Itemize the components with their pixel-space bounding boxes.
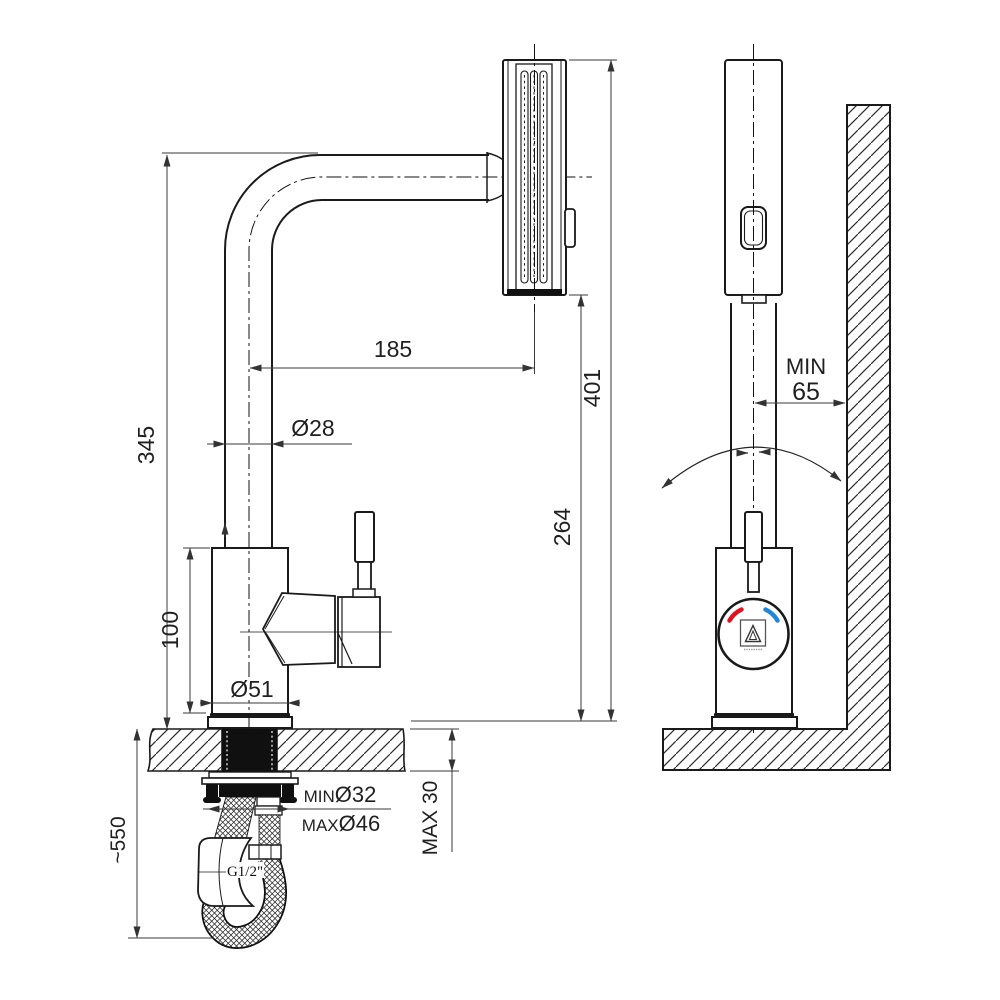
base-plate — [208, 717, 292, 728]
dim-hole-min-label: MINØ32 — [304, 782, 377, 807]
handle-collar — [353, 589, 375, 597]
countertop-right-section — [277, 729, 405, 771]
handle-lever-front — [745, 512, 762, 562]
handle-stem-front — [748, 562, 759, 592]
spout-inner-line — [272, 200, 489, 548]
dim-100-label: 100 — [157, 611, 183, 649]
supply-hose-left — [214, 797, 256, 840]
spray-button-side — [565, 209, 575, 247]
dim-min65-value: 65 — [792, 378, 820, 406]
dim-max30-label: MAX 30 — [419, 781, 442, 856]
mounting-washer — [209, 772, 291, 778]
dim-264-label: 264 — [549, 508, 575, 547]
dim-o28-label: Ø28 — [291, 415, 334, 441]
nozzle-strip-1 — [521, 71, 528, 283]
dim-401-label: 401 — [579, 369, 605, 407]
dim-tube-diameter: Ø28 — [207, 415, 352, 444]
dim-o51-label: Ø51 — [230, 676, 273, 702]
mounting-shank — [222, 729, 277, 773]
brand-logo — [741, 620, 766, 650]
thread-size-label: G1/2" — [227, 864, 263, 880]
dim-hole-max-label: MAXØ46 — [302, 811, 380, 836]
side-view: G1/2" — [107, 44, 617, 938]
handle-lever — [355, 512, 374, 562]
technical-drawing: G1/2" — [0, 0, 1000, 1000]
dim-counter-thickness: MAX 30 — [410, 729, 459, 855]
dim-550-label: ~550 — [107, 816, 130, 863]
dim-185-label: 185 — [374, 336, 412, 362]
countertop-left-section — [148, 729, 222, 771]
mounting-nut — [219, 784, 281, 797]
base-plate-front — [712, 717, 797, 728]
spout-outer-line — [225, 155, 489, 548]
thread-hex-nut — [249, 845, 281, 859]
swivel-arc — [662, 447, 841, 488]
dim-body-height: 100 — [157, 548, 210, 713]
mounting-screw-left — [203, 784, 221, 803]
spray-head-side — [503, 44, 575, 312]
temperature-badge — [719, 599, 789, 669]
drawing-canvas: G1/2" — [0, 0, 1000, 1000]
dim-345-label: 345 — [133, 426, 159, 464]
dim-wall-clearance: MIN 65 — [755, 354, 845, 406]
dim-min65-label: MIN — [786, 354, 826, 379]
front-view: MIN 65 — [662, 44, 890, 770]
mounting-screw-right — [279, 784, 297, 803]
handle-stem — [358, 562, 371, 592]
mounting-flange — [202, 778, 298, 784]
nozzle-strip-3 — [540, 71, 547, 283]
dim-outlet-height: 264 — [549, 295, 588, 721]
dim-spout-reach: 185 — [250, 312, 535, 374]
